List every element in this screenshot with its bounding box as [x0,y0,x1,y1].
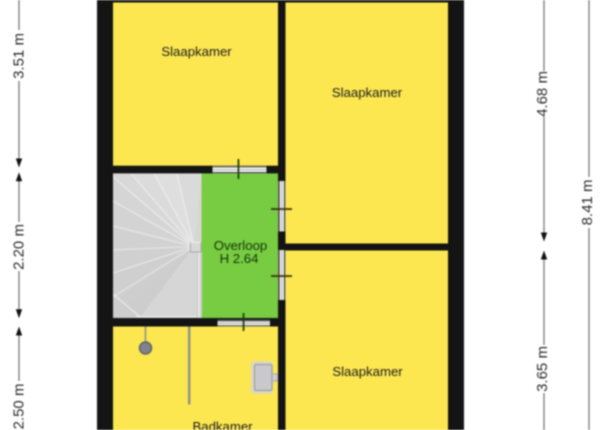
svg-text:Slaapkamer: Slaapkamer [332,364,403,379]
svg-text:3.51 m: 3.51 m [11,33,28,79]
svg-text:Badkamer: Badkamer [192,419,253,430]
svg-text:2.20 m: 2.20 m [11,224,28,270]
svg-text:3.65 m: 3.65 m [534,346,551,392]
svg-text:4.68 m: 4.68 m [534,71,551,117]
svg-text:Slaapkamer: Slaapkamer [332,85,403,100]
svg-text:Slaapkamer: Slaapkamer [161,44,232,59]
svg-text:8.41 m: 8.41 m [579,180,596,226]
svg-text:2.50 m: 2.50 m [11,384,28,430]
svg-text:H 2.64: H 2.64 [220,251,259,266]
